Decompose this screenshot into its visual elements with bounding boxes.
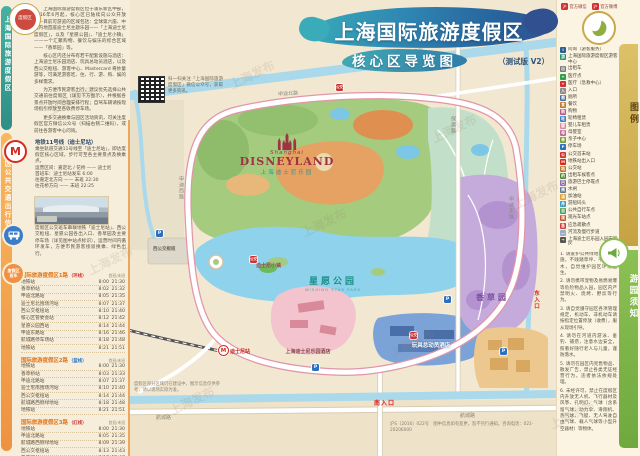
disney-town-label: 迪士尼小镇 — [256, 262, 281, 269]
last-time: 21:32 — [109, 287, 125, 292]
legend-item-label: 轮椅租赁 — [568, 116, 586, 122]
parking-icon: P — [312, 364, 319, 371]
legend-item-icon: 出 — [560, 66, 566, 72]
legend-item-icon: 食 — [560, 102, 566, 108]
shuttle-tables: 国际旅游度假区1路 （环线） 首班/末班 地铁站 8:00 21:30 — [21, 268, 125, 456]
legend-item-label: 观光车站点 — [568, 215, 591, 221]
resort-emblem — [582, 11, 616, 45]
legend-item-icon: M — [560, 159, 566, 165]
stop-row: 地铁站 8:21 21:51 — [21, 345, 125, 352]
shuttle-table-2: 国际旅游度假区2路 （蓝线） 首班/末班 地铁站 8:00 21:30 — [21, 356, 125, 416]
stop-name: 航城路西侧绿地站 — [21, 401, 93, 406]
legend-item-icon: — — [560, 230, 566, 236]
first-time: 8:07 — [93, 379, 109, 384]
stop-name: 香草桥站 — [21, 287, 93, 292]
official-badges: 沪 官方微信 沪 官方微博 — [561, 3, 617, 10]
last-time: 21:40 — [109, 309, 125, 314]
stop-name: 地铁站 — [21, 427, 93, 432]
brand-name: DISNEYLAND — [228, 156, 346, 167]
legend-item-label: 入口 — [568, 88, 577, 94]
legend-item-label: 应急疏散点 — [568, 223, 591, 229]
stop-name: 航城路停车场站 — [21, 338, 93, 343]
legend-item-label: 婴儿车租赁 — [568, 123, 591, 129]
legend-item: 舟 游船码头 — [560, 201, 618, 207]
stop-name: 迪士尼南围场河站 — [21, 386, 93, 391]
stop-row: 地铁站 8:21 21:51 — [21, 408, 125, 415]
resort-logo-badge: 度假区 — [9, 3, 41, 35]
version-note: （测试版 V2） — [498, 56, 549, 67]
stop-row: 西公交枢纽站 8:14 21:44 — [21, 393, 125, 400]
legend-item: 自 公共自行车点 — [560, 208, 618, 214]
shuttle-table-3: 国际旅游度假区3路 （红线） 首班/末班 地铁站 8:00 21:30 — [21, 418, 125, 456]
page-subtitle: 核心区导览图 — [342, 49, 467, 72]
disneyland-logo: Shanghai DISNEYLAND 上海迪士尼乐园 — [228, 132, 346, 176]
legend-item-icon: 急 — [560, 223, 566, 229]
east-entrance-label: 东入口 — [532, 290, 540, 310]
legend-item-icon: 入 — [560, 88, 566, 94]
legend-item-icon: i — [560, 47, 566, 53]
park-rule-item: 4. 请勿在河道内游泳、垂钓、捕捞，注意水边安全，照看好随行老人与儿童，谨防落水… — [560, 334, 617, 359]
stop-row: 西公交枢纽站 8:13 21:43 — [21, 448, 125, 455]
legend-item-icon: 游 — [560, 54, 566, 60]
stop-name: 地铁站 — [21, 364, 93, 369]
intro-paragraph: 为方便市民游客出行，建议优先选择公共交通前往度假区（详见下方图示），并根据各景点… — [34, 88, 126, 114]
last-time: 21:44 — [109, 394, 125, 399]
page-title: 上海国际旅游度假区 — [300, 16, 558, 45]
intro-paragraph: 上海国际旅游度假区位于浦东新区中部，2016年6月起，核心区已陆续向公众开放——… — [34, 7, 126, 52]
metro-title: 地铁11号线（迪士尼站） — [35, 138, 126, 146]
park-rules-tab: 游园须知 — [619, 250, 638, 448]
legend-item-label: 出租车候客点 — [568, 173, 595, 179]
legend-item-label: 医疗（急救中心） — [568, 81, 604, 87]
last-time: 21:48 — [109, 338, 125, 343]
first-time: 8:09 — [93, 441, 109, 446]
stop-name: 核心区管委会站 — [21, 316, 93, 321]
wishing-park-en: WISHING STAR PARK — [288, 287, 378, 292]
stop-name: 申迪东路站 — [21, 331, 93, 336]
stop-name: 星愿公园西站 — [21, 324, 93, 329]
legend-item: 入 入口 — [560, 88, 618, 94]
legend-item: 的 出租车候客点 — [560, 173, 618, 179]
intro-text-block: 上海国际旅游度假区位于浦东新区中部，2016年6月起，核心区已陆续向公众开放——… — [34, 7, 126, 133]
park-rules-list: 1. 请爱护公共绿地和公共设施，不践踏草坪、不攀折花木，自觉维护园区环境卫生。2… — [560, 252, 617, 452]
park-rule-item: 6. 未经许可，禁止在度假区内升放无人机、飞行器材及风筝、孔明灯、气球（含系留气… — [560, 389, 617, 433]
wishing-star-park-label: 星愿公园 WISHING STAR PARK — [288, 274, 378, 292]
resort-guide-map-page: 上海发布 上海发布 上海发布 上海发布 上海发布 上海发布 上海发布 上海发布 … — [0, 0, 640, 456]
legend-item: 食 餐饮 — [560, 102, 618, 108]
first-time: 8:21 — [93, 408, 109, 413]
stop-row: 西公交枢纽站 8:10 21:40 — [21, 308, 125, 315]
legend-item: 出 出租车 — [560, 66, 618, 72]
legend-item: 婴 婴儿车租赁 — [560, 123, 618, 129]
last-time: 21:39 — [109, 441, 125, 446]
stop-row: 星愿公园西站 8:14 21:44 — [21, 323, 125, 330]
legend-tab: 图例 — [619, 44, 638, 246]
route3-rows: 地铁站 8:00 21:30 申迪北路站 8:05 21:35 航城路西侧绿地站 — [21, 426, 125, 456]
route2-rows: 地铁站 8:00 21:30 香草桥站 8:03 21:33 申迪北路站 — [21, 364, 125, 416]
legend-item-label: 母婴室 — [568, 130, 582, 136]
west-hub-label: 西公交枢纽 — [153, 246, 176, 252]
first-time: 8:07 — [93, 302, 109, 307]
qr-caption: 扫一扫关注「上海国际旅游度假区」微信公众号，获取更多资讯。 — [168, 77, 223, 95]
legend-item: 公 公交首末站 — [560, 152, 618, 158]
last-time: 21:35 — [109, 294, 125, 299]
stop-row: 地铁站 8:00 21:30 — [21, 426, 125, 433]
legend-list: i 问询（游客服务） 游 上海国际旅游度假区游客中心 出 出租车 + 医疗点 — [560, 47, 618, 245]
road-tansuo: 探索路 — [450, 116, 457, 134]
legend-item-icon: 厕 — [560, 95, 566, 101]
bus-info-text: 度假区公交班车串联地铁「迪士尼站」、西公交枢纽、星愿公园各出入口、香草园及主要停… — [35, 226, 126, 258]
left-strip-transport: 度假区公共交通出行信息 — [1, 133, 12, 451]
note-bottom-right: 沪S（2016）022号 图中信息如有变更，恕不另行通知。咨询电话：021-20… — [390, 422, 550, 433]
megaphone-glyph — [607, 247, 621, 259]
legend-item-icon: + — [560, 81, 566, 87]
last-time: 21:51 — [109, 408, 125, 413]
stop-name: 地铁站 — [21, 346, 93, 351]
legend-item-label: 亲子中心 — [568, 137, 586, 143]
note-bottom-left: 度假区部分区域仍在建设中，图示信息仅供参考，请以现场实际为准。 — [134, 382, 222, 393]
road-hangcheng-west: 航城路 — [156, 414, 171, 421]
stop-row: 申迪东路站 8:16 21:46 — [21, 331, 125, 338]
legend-item: + 医疗点 — [560, 74, 618, 80]
legend-item-label: 公共自行车点 — [568, 208, 595, 214]
legend-item-icon: 亲 — [560, 137, 566, 143]
route1-rows: 地铁站 8:00 21:30 香草桥站 8:02 21:32 申迪北路站 — [21, 279, 125, 353]
last-time: 21:43 — [109, 449, 125, 454]
stop-row: 航城路西侧绿地站 8:09 21:39 — [21, 441, 125, 448]
legend-item-label: 问询（游客服务） — [568, 47, 604, 53]
bus-stop-icon: 公交 — [410, 332, 417, 339]
badge-label: 官方微信 — [570, 4, 587, 10]
legend-item-icon: 巴 — [560, 180, 566, 186]
shuttle-icon: 度假区班车 — [4, 264, 23, 283]
stop-name: 申迪北路站 — [21, 294, 93, 299]
legend-item-icon: 母 — [560, 130, 566, 136]
route3-columns: 首班/末班 — [109, 420, 125, 426]
legend-item-label: 公交站 — [568, 166, 582, 172]
last-time: 21:51 — [109, 346, 125, 351]
metro-info-block: 地铁11号线（迪士尼站） 乘坐轨道交通11号线至「迪士尼站」，即达度假区核心区域… — [35, 138, 126, 190]
last-time: 21:30 — [109, 280, 125, 285]
legend-item-label: 购物 — [568, 109, 577, 115]
legend-tab-text: 图例 — [619, 102, 638, 126]
route2-title: 国际旅游度假区2路 — [21, 356, 68, 364]
legend-item: — 河流及慢行步道 — [560, 230, 618, 236]
official-badge: 沪 官方微信 — [561, 3, 587, 10]
leaf-icon — [589, 18, 609, 38]
last-time: 21:30 — [109, 364, 125, 369]
col-last: 末班 — [117, 420, 125, 425]
legend-item: + 医疗（急救中心） — [560, 81, 618, 87]
metro-logo-icon: M — [4, 140, 27, 163]
first-time: 8:00 — [93, 364, 109, 369]
first-time: 8:00 — [93, 280, 109, 285]
first-time: 8:10 — [93, 309, 109, 314]
legend-item: 轮 轮椅租赁 — [560, 116, 618, 122]
legend-item-label: 厕所 — [568, 95, 577, 101]
station-photo — [34, 196, 109, 225]
stop-row: 香草桥站 8:03 21:33 — [21, 371, 125, 378]
legend-item-label: 地铁站出入口 — [568, 159, 595, 165]
legend-item-icon: 站 — [560, 166, 566, 172]
road-hangcheng-east: 航城路 — [460, 412, 475, 419]
legend-item-icon: 自 — [560, 208, 566, 214]
shuttle-table-1: 国际旅游度假区1路 （环线） 首班/末班 地铁站 8:00 21:30 — [21, 271, 125, 353]
legend-item-label: 旅游巴士停靠点 — [568, 180, 600, 186]
last-time: 21:46 — [109, 331, 125, 336]
legend-item-label: 上海国际旅游度假区游客中心 — [568, 54, 618, 65]
legend-item-icon: P — [560, 144, 566, 150]
badge-icon: 沪 — [592, 3, 599, 10]
last-time: 21:42 — [109, 316, 125, 321]
col-first: 首班 — [109, 273, 117, 278]
legend-item: 急 应急疏散点 — [560, 223, 618, 229]
park-rules-tab-text: 游园须知 — [619, 274, 638, 320]
col-first: 首班 — [109, 358, 117, 363]
route1-title: 国际旅游度假区1路 — [21, 271, 68, 279]
first-time: 8:13 — [93, 449, 109, 454]
herb-garden-label: 香草园 — [476, 292, 509, 303]
legend-item-icon: 轮 — [560, 116, 566, 122]
legend-item: 购 购物 — [560, 109, 618, 115]
intro-paragraph: 核心区内还分布有若干配套设施与酒店：上海迪士尼乐园酒店、玩具总动员酒店，以及西公… — [34, 54, 126, 86]
first-time: 8:21 — [93, 346, 109, 351]
stop-name: 地铁站 — [21, 280, 93, 285]
road-shendi-east: 申迪东路 — [508, 196, 515, 220]
first-time: 8:16 — [93, 331, 109, 336]
stop-name: 迪士尼北围场河站 — [21, 302, 93, 307]
toy-story-hotel-label: 玩具总动员酒店 — [396, 341, 466, 349]
strip-title-text: 上海国际旅游度假区 — [1, 16, 12, 93]
south-entrance-label: 南入口 — [374, 398, 395, 407]
badge-icon: 沪 — [561, 3, 568, 10]
legend-item-label: 加油站 — [568, 194, 582, 200]
bus-stop-icon: 公交 — [336, 84, 343, 91]
stop-row: 申迪北路站 8:05 21:35 — [21, 294, 125, 301]
bus-icon — [4, 226, 23, 245]
legend-item-label: 公交首末站 — [568, 152, 591, 158]
wechat-qr-code — [138, 76, 165, 103]
legend-item-label: 游船码头 — [568, 201, 586, 207]
resort-logo-text: 度假区 — [15, 9, 36, 30]
disneyland-hotel-label: 上海迪士尼乐园酒店 — [274, 348, 342, 355]
legend-item-icon: 购 — [560, 109, 566, 115]
metro-station-icon: M — [218, 345, 229, 356]
legend-item: i 问询（游客服务） — [560, 47, 618, 53]
stop-row: 航城路西侧绿地站 8:18 21:48 — [21, 400, 125, 407]
right-sidebar: 沪 官方微信 沪 官方微博 图例 i 问询（游客服务） — [556, 0, 640, 456]
legend-item: 厕 厕所 — [560, 95, 618, 101]
legend-item-label: 出租车 — [568, 66, 582, 72]
col-first: 首班 — [109, 420, 117, 425]
stop-name: 香草桥站 — [21, 372, 93, 377]
wishing-park-cn: 星愿公园 — [288, 274, 378, 287]
first-time: 8:18 — [93, 338, 109, 343]
stop-row: 地铁站 8:00 21:30 — [21, 364, 125, 371]
legend-item-icon: 舟 — [560, 201, 566, 207]
col-last: 末班 — [117, 273, 125, 278]
bus-stop-icon: 公交 — [250, 256, 257, 263]
legend-item-icon: + — [560, 74, 566, 80]
legend-item: 游 上海国际旅游度假区游客中心 — [560, 54, 618, 65]
left-sidebar: 上海国际旅游度假区 度假区公共交通出行信息 度假区 上海国际旅游度假区位于浦东新… — [0, 0, 130, 456]
first-time: 8:10 — [93, 386, 109, 391]
legend-item-label: 河流及慢行步道 — [568, 230, 600, 236]
legend-item-icon: 油 — [560, 194, 566, 200]
legend-item-icon: 闸 — [560, 187, 566, 193]
stop-row: 航城路停车场站 8:18 21:48 — [21, 338, 125, 345]
legend-item: 观 观光车站点 — [560, 215, 618, 221]
route2-tag: （蓝线） — [69, 358, 87, 364]
stop-row: 地铁站 8:00 21:30 — [21, 279, 125, 286]
legend-item-label: 医疗点 — [568, 74, 582, 80]
legend-item: 闸 水闸 — [560, 187, 618, 193]
first-time: 8:14 — [93, 324, 109, 329]
route3-title: 国际旅游度假区3路 — [21, 418, 68, 426]
parking-icon: P — [500, 348, 507, 355]
last-time: 21:30 — [109, 427, 125, 432]
badge-label: 官方微博 — [600, 4, 617, 10]
legend-item: 亲 亲子中心 — [560, 137, 618, 143]
first-time: 8:00 — [93, 427, 109, 432]
first-time: 8:05 — [93, 434, 109, 439]
title-banner: 上海国际旅游度假区 核心区导览图 （测试版 V2） — [300, 4, 558, 76]
first-time: 8:18 — [93, 401, 109, 406]
legend-item: 母 母婴室 — [560, 130, 618, 136]
last-time: 21:44 — [109, 324, 125, 329]
stop-name: 申迪北路站 — [21, 434, 93, 439]
metro-schedule-line: 往花桥方向 —— 末班 22:25 — [35, 184, 126, 190]
legend-item-icon: → — [560, 237, 566, 243]
first-time: 8:12 — [93, 316, 109, 321]
legend-item-icon: 观 — [560, 215, 566, 221]
legend-item: P 停车场 — [560, 144, 618, 150]
legend-item-icon: 的 — [560, 173, 566, 179]
last-time: 21:33 — [109, 372, 125, 377]
official-badge: 沪 官方微博 — [592, 3, 618, 10]
parking-icon: P — [156, 230, 163, 237]
legend-item-label: 停车场 — [568, 144, 582, 150]
road-shendi-west: 申迪西路 — [178, 176, 185, 200]
megaphone-icon — [599, 238, 629, 268]
metro-station-label: 迪士尼站 — [230, 348, 250, 355]
parking-icon: P — [444, 296, 451, 303]
legend-item: 站 公交站 — [560, 166, 618, 172]
last-time: 21:37 — [109, 379, 125, 384]
metro-schedule-lines: 乘坐轨道交通11号线至「迪士尼站」，即达度假区核心区域，步行可至各主要景点及换乘… — [35, 147, 126, 190]
park-rule-item: 3. 请自觉遵守园区各项管理规定，机动车、非机动车请按指定位置停放（收费），服从… — [560, 307, 617, 332]
stop-row: 迪士尼南围场河站 8:10 21:40 — [21, 386, 125, 393]
route3-tag: （红线） — [69, 420, 87, 426]
legend-item-label: 水闸 — [568, 187, 577, 193]
legend-item: M 地铁站出入口 — [560, 159, 618, 165]
last-time: 21:48 — [109, 401, 125, 406]
park-rule-item: 2. 请勿携带宠物及易燃易爆等危险物品入园，园区内严禁明火、烧烤、野炊等行为。 — [560, 279, 617, 304]
last-time: 21:37 — [109, 302, 125, 307]
metro-schedule-line: 乘坐轨道交通11号线至「迪士尼站」，即达度假区核心区域，步行可至各主要景点及换乘… — [35, 147, 126, 166]
brand-cn: 上海迪士尼乐园 — [228, 168, 346, 176]
stop-name: 西公交枢纽站 — [21, 394, 93, 399]
legend-item-icon: 公 — [560, 152, 566, 158]
stop-row: 核心区管委会站 8:12 21:42 — [21, 316, 125, 323]
route1-tag: （环线） — [69, 273, 87, 279]
last-time: 21:40 — [109, 386, 125, 391]
col-last: 末班 — [117, 358, 125, 363]
first-time: 8:05 — [93, 294, 109, 299]
stop-row: 申迪北路站 8:05 21:35 — [21, 433, 125, 440]
route2-columns: 首班/末班 — [109, 358, 125, 364]
stop-name: 地铁站 — [21, 408, 93, 413]
legend-item: 巴 旅游巴士停靠点 — [560, 180, 618, 186]
castle-icon — [274, 132, 300, 152]
intro-paragraph: 更多交通换乘与园区活动资讯，可关注度假区官方微信公众号（扫描右侧二维码），或前往… — [34, 116, 126, 133]
stop-name: 西公交枢纽站 — [21, 309, 93, 314]
stop-row: 迪士尼北围场河站 8:07 21:37 — [21, 301, 125, 308]
stop-row: 申迪北路站 8:07 21:37 — [21, 378, 125, 385]
legend-item-icon: 婴 — [560, 123, 566, 129]
last-time: 21:35 — [109, 434, 125, 439]
first-time: 8:03 — [93, 372, 109, 377]
stop-name: 申迪北路站 — [21, 379, 93, 384]
stop-row: 香草桥站 8:02 21:32 — [21, 286, 125, 293]
first-time: 8:14 — [93, 394, 109, 399]
park-rule-item: 5. 请勿在园区内兜售物品、散发广告，禁止各类无证经营行为，违者依法依规处理。 — [560, 362, 617, 387]
first-time: 8:02 — [93, 287, 109, 292]
legend-item: 油 加油站 — [560, 194, 618, 200]
shuttle-icon-text: 度假区班车 — [8, 269, 20, 278]
legend-item-label: 餐饮 — [568, 102, 577, 108]
stop-name: 西公交枢纽站 — [21, 449, 93, 454]
route1-columns: 首班/末班 — [109, 273, 125, 279]
bus-glyph — [8, 231, 20, 240]
sidebar-divider — [128, 120, 130, 456]
road-shendi-north: 申迪北路 — [278, 89, 298, 97]
stop-name: 航城路西侧绿地站 — [21, 441, 93, 446]
